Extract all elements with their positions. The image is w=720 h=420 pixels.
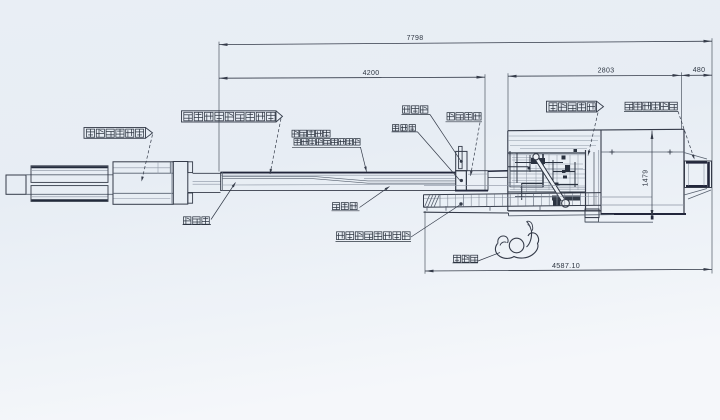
svg-text:4587.10: 4587.10 — [552, 261, 580, 270]
svg-text:480: 480 — [693, 67, 706, 74]
svg-text:7798: 7798 — [407, 35, 424, 42]
svg-text:1479: 1479 — [643, 170, 650, 187]
svg-text:2803: 2803 — [598, 68, 615, 75]
svg-text:4200: 4200 — [363, 70, 380, 77]
